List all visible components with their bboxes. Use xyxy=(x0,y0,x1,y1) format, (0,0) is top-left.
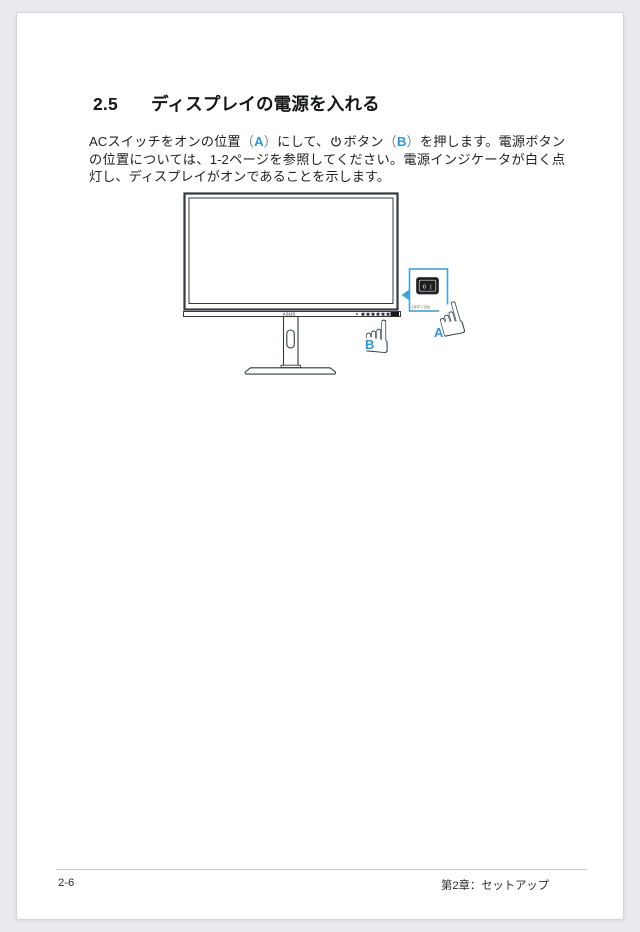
stand-base xyxy=(245,368,335,374)
para-text: ボタン xyxy=(343,134,383,149)
hand-a-icon: ☝ xyxy=(430,290,472,350)
section-number: 2.5 xyxy=(93,94,151,115)
paren: （ xyxy=(241,134,254,149)
monitor-screen xyxy=(189,198,393,304)
callout-ref-b: B xyxy=(397,134,407,149)
power-icon xyxy=(330,135,342,148)
section-heading: 2.5 ディスプレイの電源を入れる xyxy=(93,91,380,116)
footer-divider xyxy=(56,869,587,870)
footer: 2-6 第2章：セットアップ xyxy=(56,877,587,893)
para-text: ACスイッチをオンの位置 xyxy=(89,134,241,149)
paren: ） xyxy=(264,134,277,149)
paren: （ xyxy=(384,134,397,149)
footer-chapter: 第2章：セットアップ xyxy=(441,877,549,893)
switch-markings: O | xyxy=(423,284,433,290)
para-text: にして、 xyxy=(277,134,329,149)
hand-a: ☝ A xyxy=(430,290,472,350)
stand-joint xyxy=(281,365,301,367)
figure-svg: ASUS O | OFF / ON xyxy=(161,186,481,391)
body-paragraph: ACスイッチをオンの位置（A）にして、ボタン（B）を押します。電源ボタンの位置に… xyxy=(89,133,565,185)
figure-power-on-diagram: ASUS O | OFF / ON xyxy=(161,186,481,391)
brand-logo: ASUS xyxy=(283,312,296,317)
footer-page-number: 2-6 xyxy=(58,877,74,889)
hand-b: ☝ B xyxy=(363,310,391,364)
section-title: ディスプレイの電源を入れる xyxy=(151,91,380,116)
label-a: A xyxy=(434,325,444,340)
power-key xyxy=(391,312,400,316)
callout-arrow xyxy=(402,290,410,301)
label-b: B xyxy=(365,337,374,352)
manual-page: 2.5 ディスプレイの電源を入れる ACスイッチをオンの位置（A）にして、ボタン… xyxy=(16,12,624,920)
switch-caption: OFF / ON xyxy=(412,305,431,310)
paren: ） xyxy=(406,134,419,149)
cable-hole xyxy=(287,330,295,348)
callout-ref-a: A xyxy=(254,134,264,149)
